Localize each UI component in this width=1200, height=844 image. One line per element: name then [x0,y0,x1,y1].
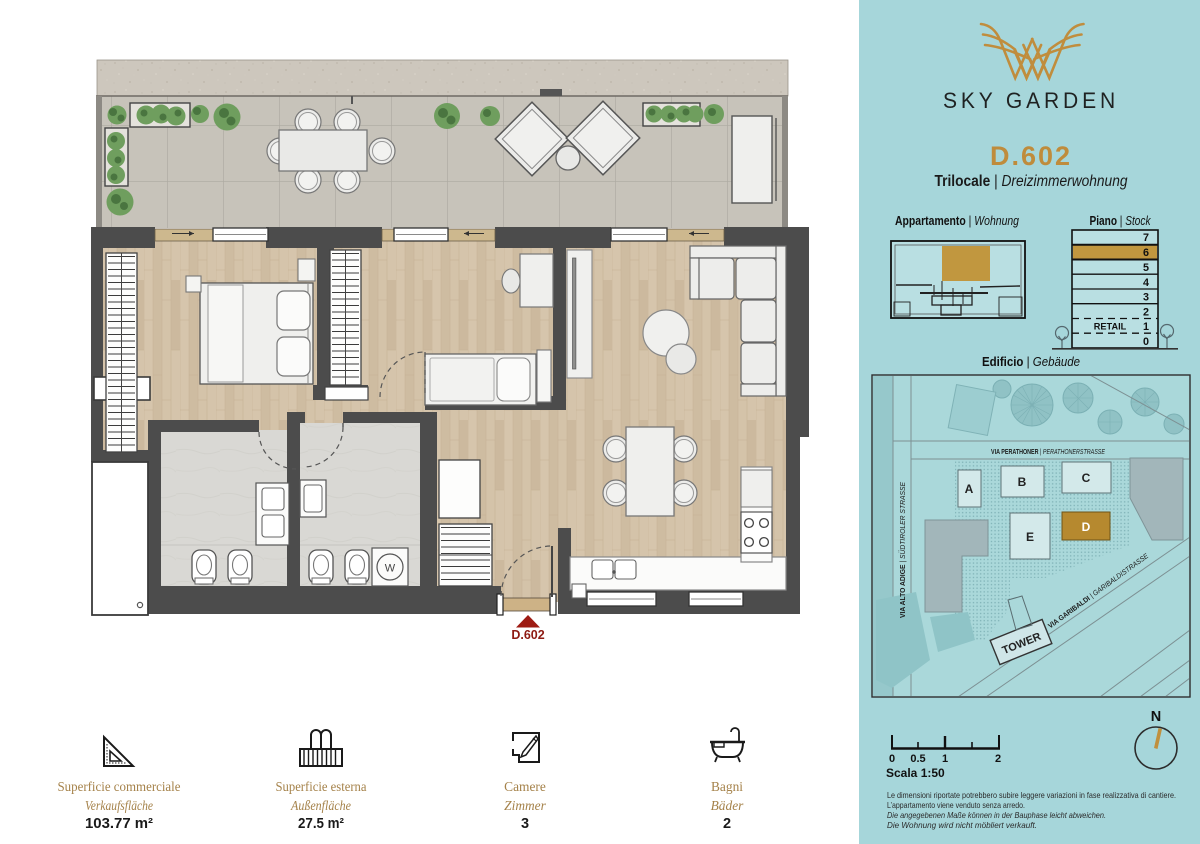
svg-text:3: 3 [521,816,529,832]
svg-text:SKY GARDEN: SKY GARDEN [943,88,1119,113]
svg-text:Die Wohnung wird nicht möblie: Die Wohnung wird nicht möbliert verkauft… [887,820,1037,830]
svg-text:Appartamento | Wohnung: Appartamento | Wohnung [895,213,1020,228]
svg-text:0.5: 0.5 [910,753,925,765]
svg-text:Edificio | Gebäude: Edificio | Gebäude [982,354,1080,369]
svg-text:2: 2 [723,816,731,832]
svg-text:VIA ALTO ADIGE | SÜDTIROLER ST: VIA ALTO ADIGE | SÜDTIROLER STRASSE [898,482,907,618]
svg-text:N: N [1151,709,1161,725]
svg-text:Trilocale | Dreizimmerwohnung: Trilocale | Dreizimmerwohnung [935,173,1128,190]
svg-text:L’appartamento viene venduto s: L’appartamento viene venduto senza arred… [887,800,1025,810]
svg-text:B: B [1018,475,1027,489]
svg-text:6: 6 [1143,247,1149,259]
svg-text:Verkaufsfläche: Verkaufsfläche [85,798,153,813]
svg-text:4: 4 [1143,277,1149,289]
svg-text:Superficie esterna: Superficie esterna [276,779,367,794]
svg-text:7: 7 [1143,232,1149,244]
svg-text:E: E [1026,530,1034,544]
svg-text:D: D [1082,520,1091,534]
svg-text:VIA PERATHONER | PERATHONERSTR: VIA PERATHONER | PERATHONERSTRASSE [991,447,1105,456]
svg-text:1: 1 [942,753,948,765]
svg-text:D.602: D.602 [990,141,1072,171]
svg-text:Piano | Stock: Piano | Stock [1090,213,1152,228]
svg-text:5: 5 [1143,262,1149,274]
svg-text:27.5 m²: 27.5 m² [298,816,344,832]
svg-text:A: A [965,482,974,496]
svg-text:Außenfläche: Außenfläche [290,798,351,813]
svg-text:Superficie commerciale: Superficie commerciale [58,779,181,794]
svg-text:0: 0 [889,753,895,765]
svg-text:RETAIL: RETAIL [1094,322,1127,332]
svg-text:2: 2 [995,753,1001,765]
svg-text:Le dimensioni riportate potreb: Le dimensioni riportate potrebbero subir… [887,790,1176,800]
svg-text:0: 0 [1143,336,1149,348]
svg-text:D.602: D.602 [511,628,544,642]
svg-text:Bagni: Bagni [711,779,743,794]
svg-text:Camere: Camere [504,779,546,794]
svg-text:Zimmer: Zimmer [504,798,546,813]
svg-text:1: 1 [1143,321,1149,333]
svg-text:103.77 m²: 103.77 m² [85,816,153,832]
svg-text:Die angegebenen Maße können in: Die angegebenen Maße können in der Bauph… [887,810,1106,820]
svg-text:C: C [1082,471,1091,485]
svg-text:2: 2 [1143,307,1149,319]
svg-text:Bäder: Bäder [711,798,745,813]
svg-text:W: W [385,563,396,575]
svg-text:Scala 1:50: Scala 1:50 [886,766,945,780]
svg-text:3: 3 [1143,292,1149,304]
